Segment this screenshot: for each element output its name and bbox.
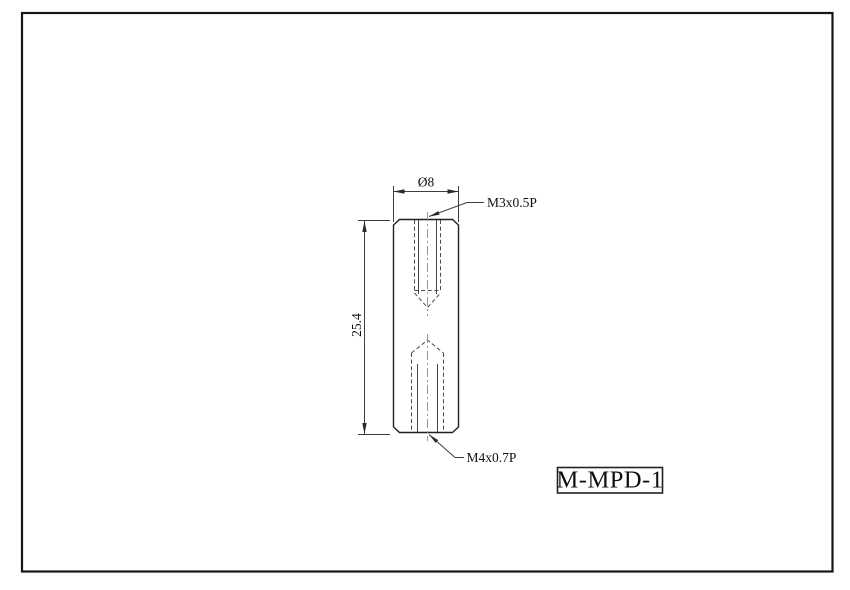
part-number-block: M-MPD-1 (557, 467, 664, 494)
length-dimension: 25.4 (349, 221, 390, 435)
bottom-thread-hole (412, 334, 444, 441)
technical-drawing-canvas: Ø8 25.4 M3x0.5P M4x0.7P M-MPD-1 (0, 0, 850, 590)
part-number-text: M-MPD-1 (557, 467, 664, 494)
diameter-dimension: Ø8 (394, 175, 459, 223)
part-outline (394, 220, 459, 433)
top-thread-label: M3x0.5P (487, 195, 537, 210)
diameter-dimension-label: Ø8 (418, 175, 435, 190)
dim-arrow-top (362, 221, 366, 232)
bottom-thread-leader: M4x0.7P (429, 435, 516, 466)
dim-arrow-right (448, 189, 459, 193)
dim-arrow-left (394, 189, 405, 193)
part-body-path (394, 220, 459, 433)
drawing-sheet: Ø8 25.4 M3x0.5P M4x0.7P M-MPD-1 (0, 0, 850, 590)
dim-arrow-bottom (362, 423, 366, 434)
leader-arrow (429, 211, 440, 216)
top-thread-hole (415, 212, 441, 316)
bottom-thread-label: M4x0.7P (467, 450, 517, 465)
top-thread-leader: M3x0.5P (429, 195, 537, 217)
length-dimension-label: 25.4 (349, 313, 364, 337)
